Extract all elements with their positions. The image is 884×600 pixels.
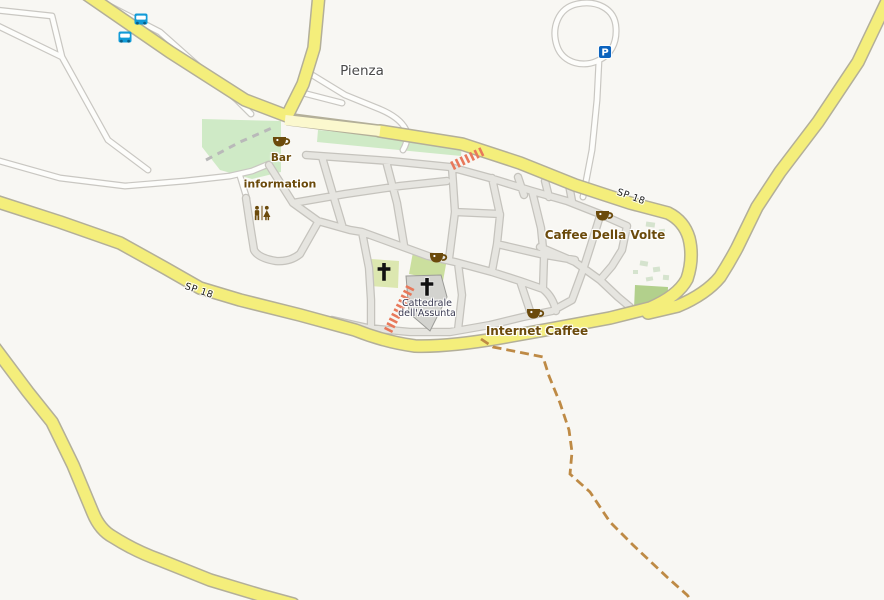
toilets-icon[interactable] bbox=[255, 206, 271, 220]
poi-label-bar: Bar bbox=[271, 152, 291, 164]
bus-stop-icon[interactable] bbox=[119, 32, 132, 43]
place-label-pienza: Pienza bbox=[340, 63, 384, 79]
map-canvas[interactable]: P Pienza Bar information Caffee Della Vo… bbox=[0, 0, 884, 600]
bus-stop-icon[interactable] bbox=[135, 14, 148, 25]
hiking-trail bbox=[481, 339, 690, 600]
parking-icon[interactable]: P bbox=[599, 46, 612, 59]
poi-label-caffee-della-volte: Caffee Della Volte bbox=[545, 228, 666, 242]
cattedrale-label-line2: dell'Assunta bbox=[398, 309, 456, 319]
poi-label-cattedrale: Cattedrale dell'Assunta bbox=[398, 299, 456, 319]
poi-label-internet-caffee: Internet Caffee bbox=[486, 324, 588, 338]
cafe-icon-bar[interactable] bbox=[273, 137, 289, 147]
poi-label-information: information bbox=[244, 178, 317, 191]
parking-letter: P bbox=[601, 48, 608, 59]
